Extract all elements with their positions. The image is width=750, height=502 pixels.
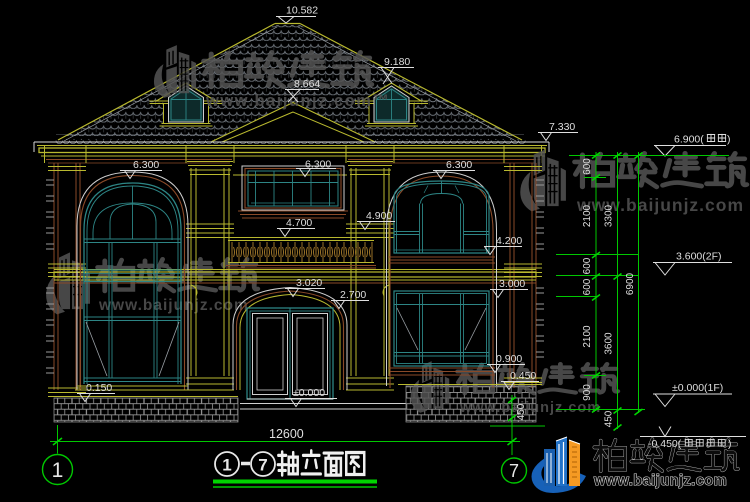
svg-text:4.900: 4.900 xyxy=(366,210,392,222)
svg-text:450: 450 xyxy=(604,410,615,427)
svg-text:10.582: 10.582 xyxy=(286,5,318,17)
svg-text:3.600(2F): 3.600(2F) xyxy=(676,251,722,263)
svg-text:0.900: 0.900 xyxy=(496,353,522,365)
svg-text:900: 900 xyxy=(582,384,593,401)
svg-text:600: 600 xyxy=(582,278,593,295)
svg-text:3.020: 3.020 xyxy=(296,277,322,289)
svg-text:7: 7 xyxy=(258,456,267,475)
svg-text:4.700: 4.700 xyxy=(286,217,312,229)
svg-text:): ) xyxy=(728,438,732,450)
svg-text:±0.000(1F): ±0.000(1F) xyxy=(672,382,723,394)
svg-text:3300: 3300 xyxy=(604,204,615,227)
svg-text:600: 600 xyxy=(582,158,593,175)
svg-text:2100: 2100 xyxy=(582,204,593,227)
svg-text:9.180: 9.180 xyxy=(384,56,410,68)
svg-text:): ) xyxy=(727,134,731,146)
svg-text:1: 1 xyxy=(222,456,231,475)
svg-text:6.300: 6.300 xyxy=(446,159,472,171)
svg-text:6.900(: 6.900( xyxy=(674,134,704,146)
svg-text:8.664: 8.664 xyxy=(294,78,320,90)
svg-text:12600: 12600 xyxy=(269,427,304,441)
svg-text:3600: 3600 xyxy=(604,332,615,355)
svg-text:600: 600 xyxy=(582,257,593,274)
svg-text:6.300: 6.300 xyxy=(133,159,159,171)
svg-text:3.000: 3.000 xyxy=(499,278,525,290)
svg-text:-0.450(: -0.450( xyxy=(648,438,682,450)
svg-text:www.baijunjz.com: www.baijunjz.com xyxy=(98,297,249,314)
svg-text:www.baijunjz.com: www.baijunjz.com xyxy=(593,473,727,489)
svg-text:7: 7 xyxy=(509,461,519,481)
svg-text:450: 450 xyxy=(516,403,527,420)
svg-text:0.150: 0.150 xyxy=(86,382,112,394)
svg-text:1: 1 xyxy=(52,459,64,482)
svg-text:6900: 6900 xyxy=(625,272,636,295)
svg-text:www.baijunjz.com: www.baijunjz.com xyxy=(459,400,601,416)
svg-text:2.700: 2.700 xyxy=(340,289,366,301)
svg-text:www.baijunjz.com: www.baijunjz.com xyxy=(576,195,744,215)
svg-text:2100: 2100 xyxy=(582,325,593,348)
svg-text:4.200: 4.200 xyxy=(496,235,522,247)
svg-text:7.330: 7.330 xyxy=(549,121,575,133)
svg-text:0.450: 0.450 xyxy=(510,370,536,382)
svg-text:±0.000: ±0.000 xyxy=(293,387,325,399)
